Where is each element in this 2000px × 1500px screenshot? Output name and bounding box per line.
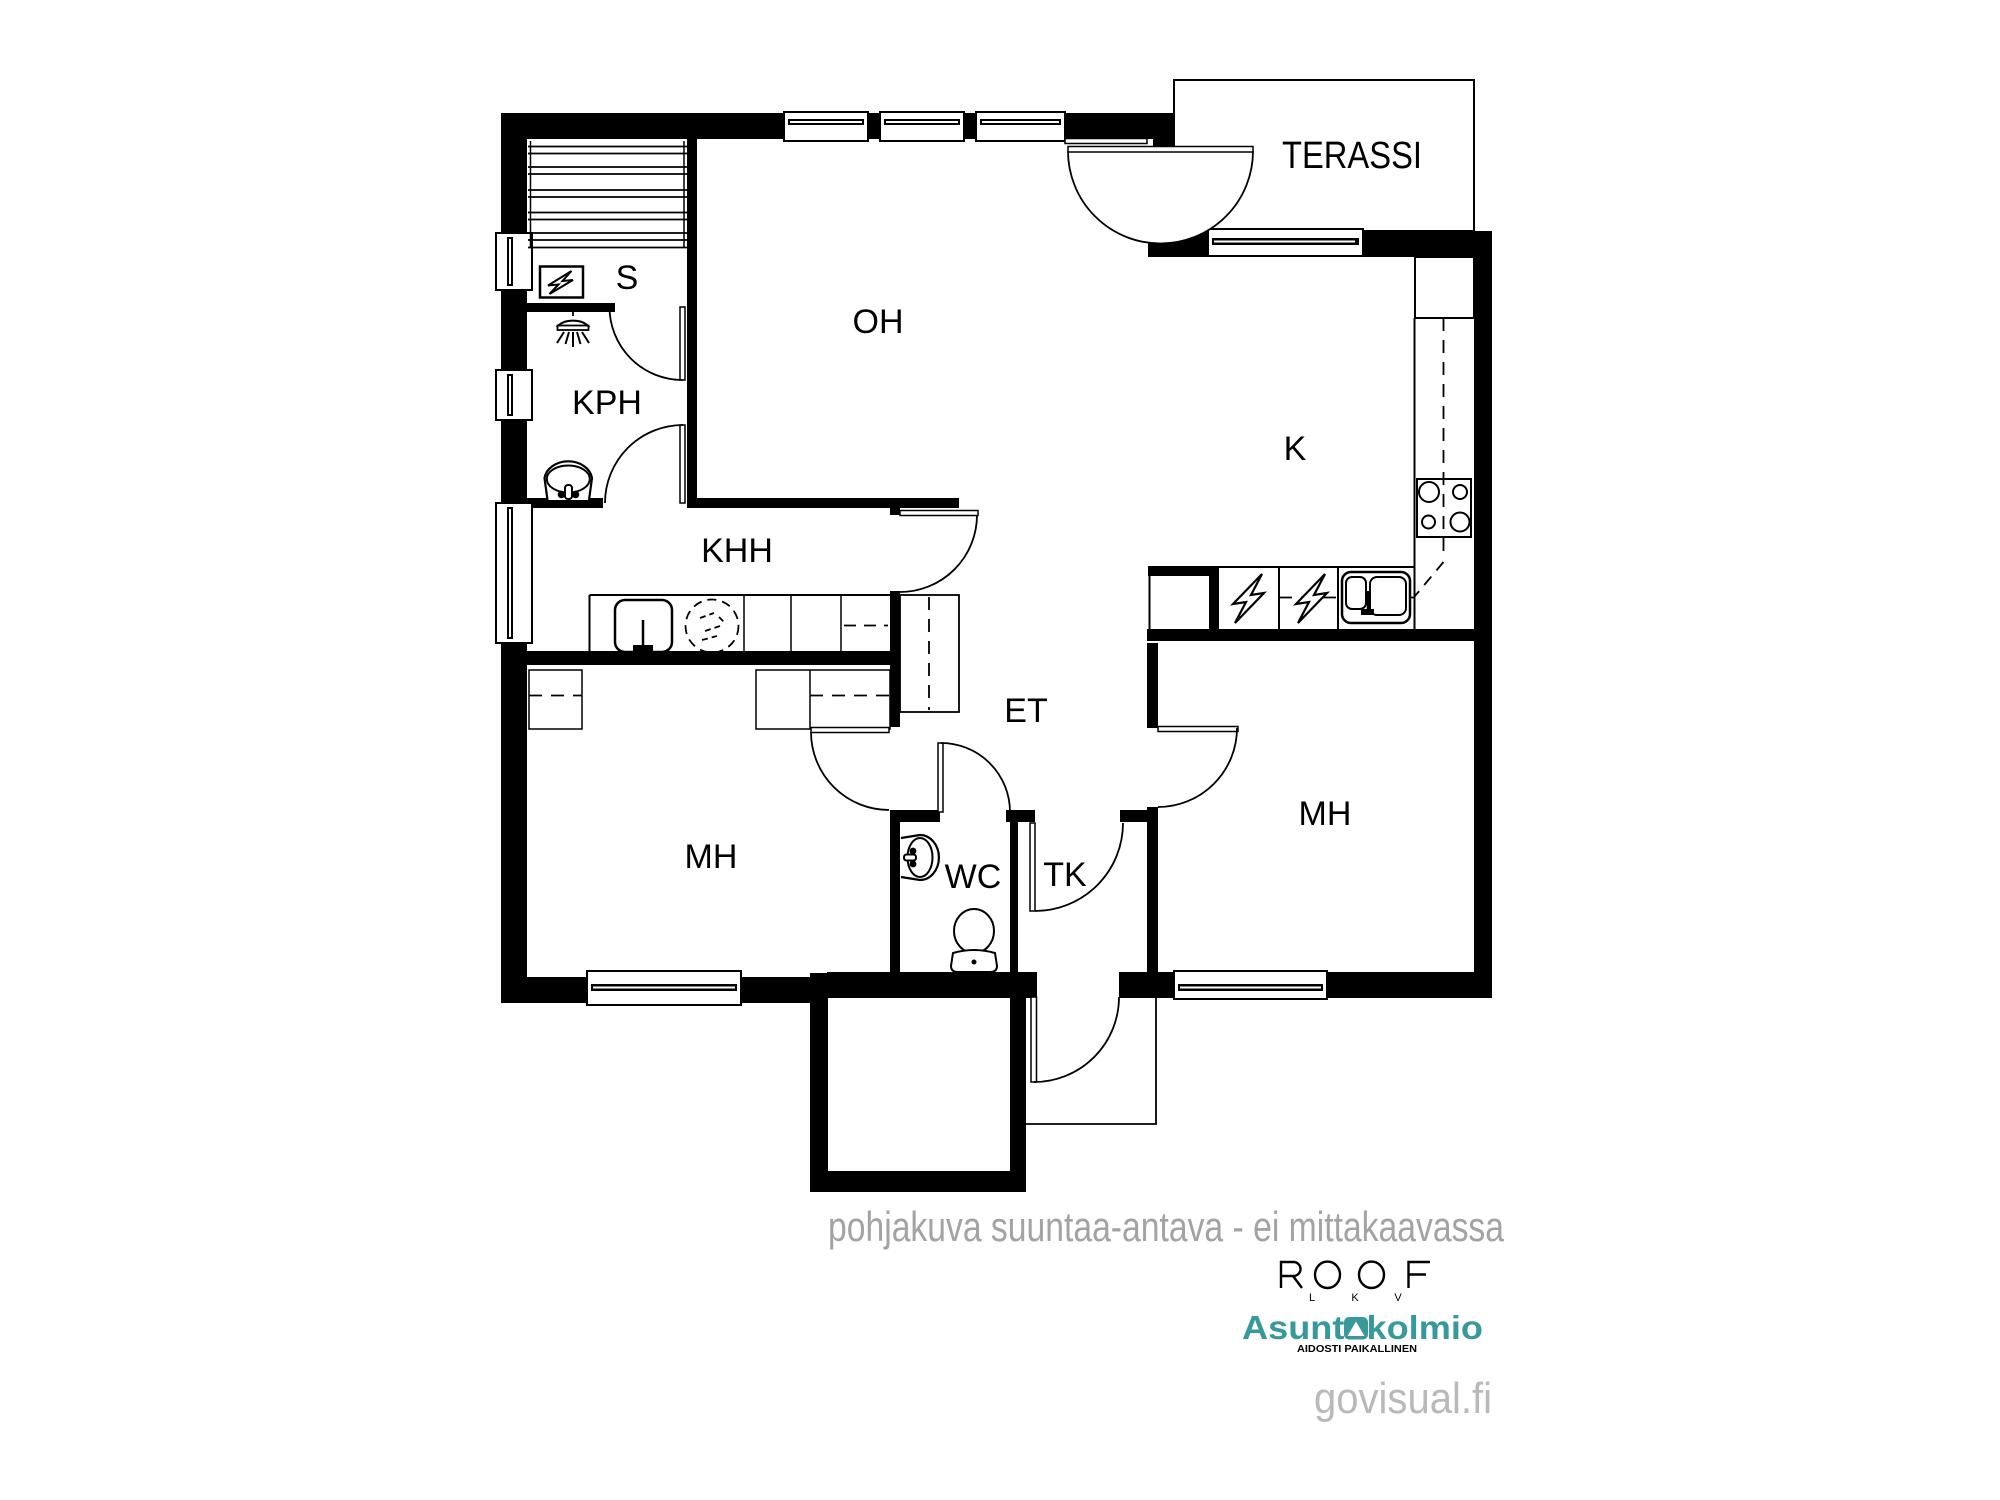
svg-text:TK: TK xyxy=(1043,856,1087,894)
svg-text:pohjakuva suuntaa-antava - ei: pohjakuva suuntaa-antava - ei mittakaava… xyxy=(828,1203,1505,1250)
svg-text:AIDOSTI PAIKALLINEN: AIDOSTI PAIKALLINEN xyxy=(1297,1343,1417,1355)
svg-text:MH: MH xyxy=(1299,795,1352,833)
svg-text:K: K xyxy=(1284,430,1307,468)
svg-text:K: K xyxy=(1351,1292,1359,1304)
svg-text:V: V xyxy=(1394,1292,1402,1304)
svg-text:S: S xyxy=(616,259,639,297)
svg-text:govisual.fi: govisual.fi xyxy=(1314,1374,1492,1423)
svg-text:WC: WC xyxy=(945,858,1002,896)
svg-text:MH: MH xyxy=(685,838,738,876)
svg-text:TERASSI: TERASSI xyxy=(1282,135,1422,177)
svg-text:KPH: KPH xyxy=(572,384,642,422)
svg-text:KHH: KHH xyxy=(701,532,773,570)
svg-text:OH: OH xyxy=(853,303,904,341)
svg-text:ET: ET xyxy=(1004,692,1047,730)
svg-text:L: L xyxy=(1309,1292,1315,1304)
